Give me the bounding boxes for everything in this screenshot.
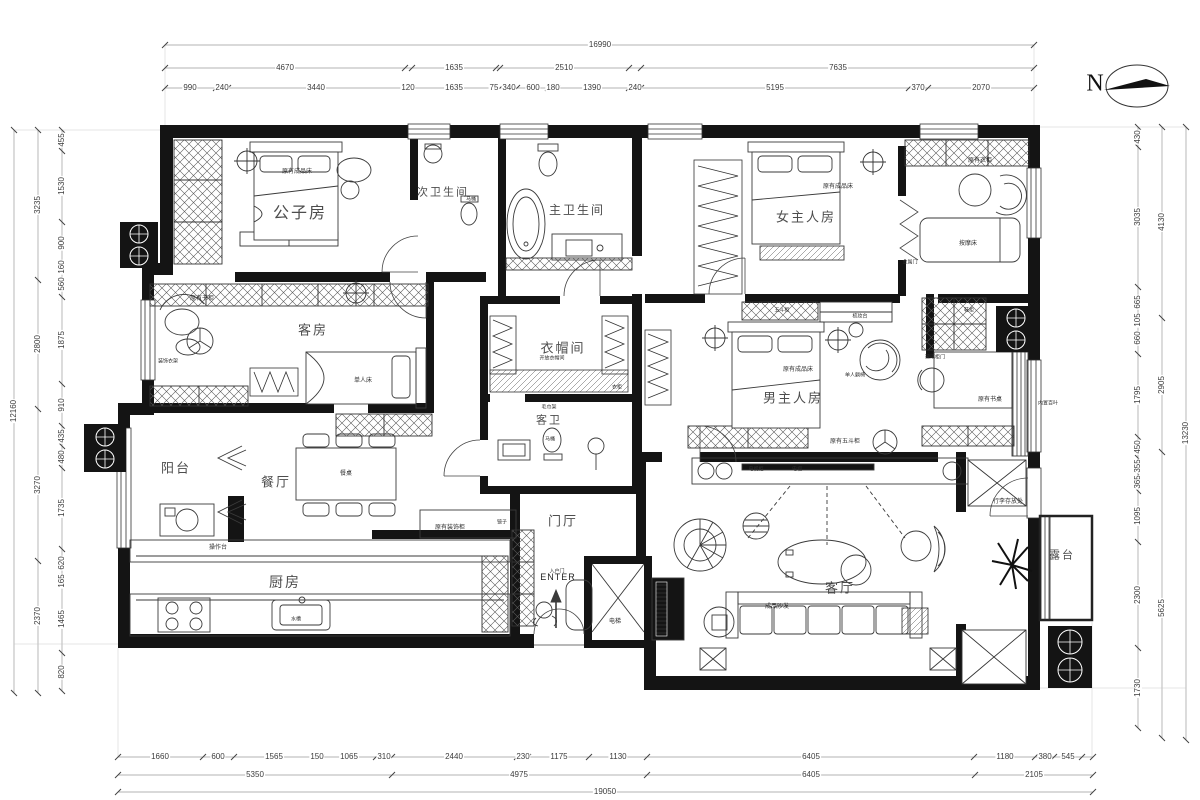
north-arrow-icon — [1104, 65, 1170, 107]
floorplan-drawing — [0, 0, 1200, 800]
enter-label: ENTER — [540, 572, 576, 582]
terrace — [1040, 516, 1092, 620]
floorplan-page: 公子房次卫生间主卫生间女主人房客房衣帽间客卫男主人房阳台餐厅厨房门厅客厅露台 原… — [0, 0, 1200, 800]
north-label: N — [1086, 71, 1103, 98]
